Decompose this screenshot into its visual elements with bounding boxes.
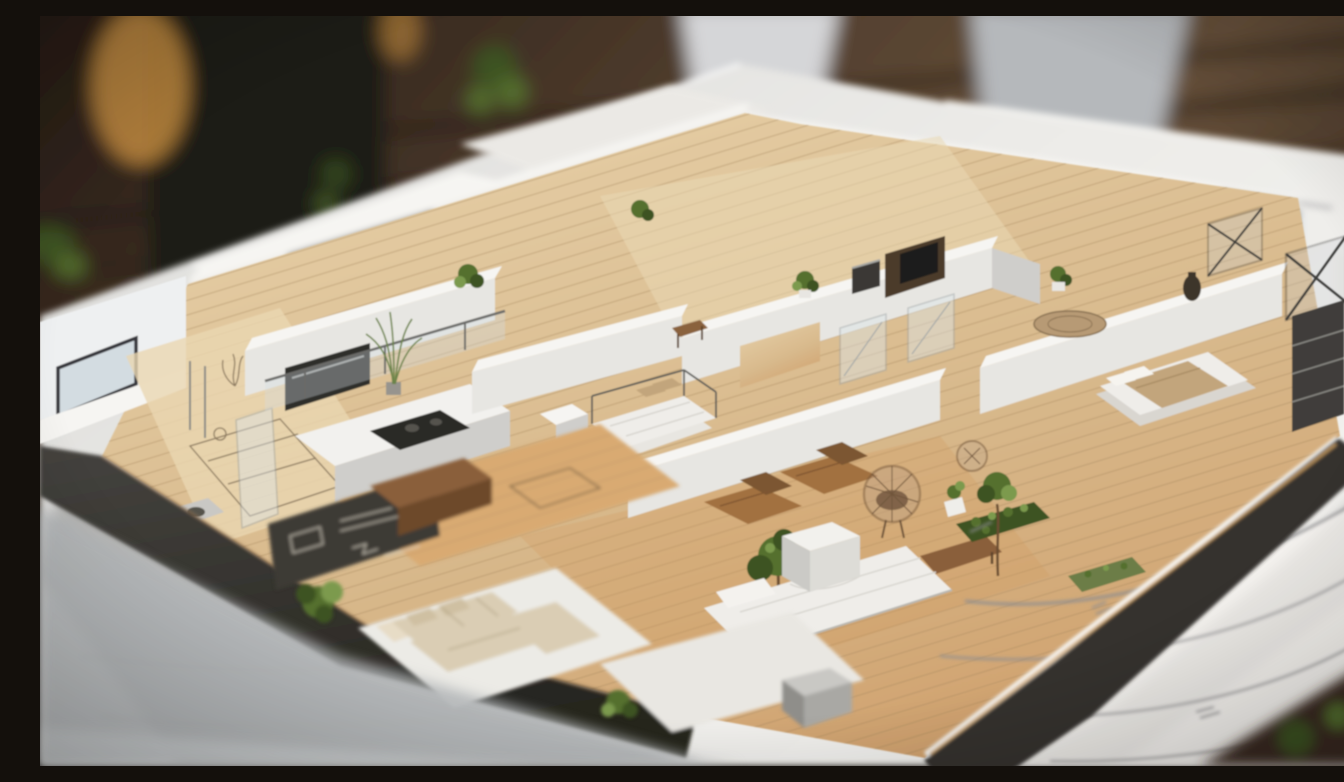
vignette: [40, 16, 1344, 766]
scene-render: [40, 16, 1344, 766]
architectural-model-photo: Photorealistic miniature 3D architectura…: [40, 16, 1344, 766]
